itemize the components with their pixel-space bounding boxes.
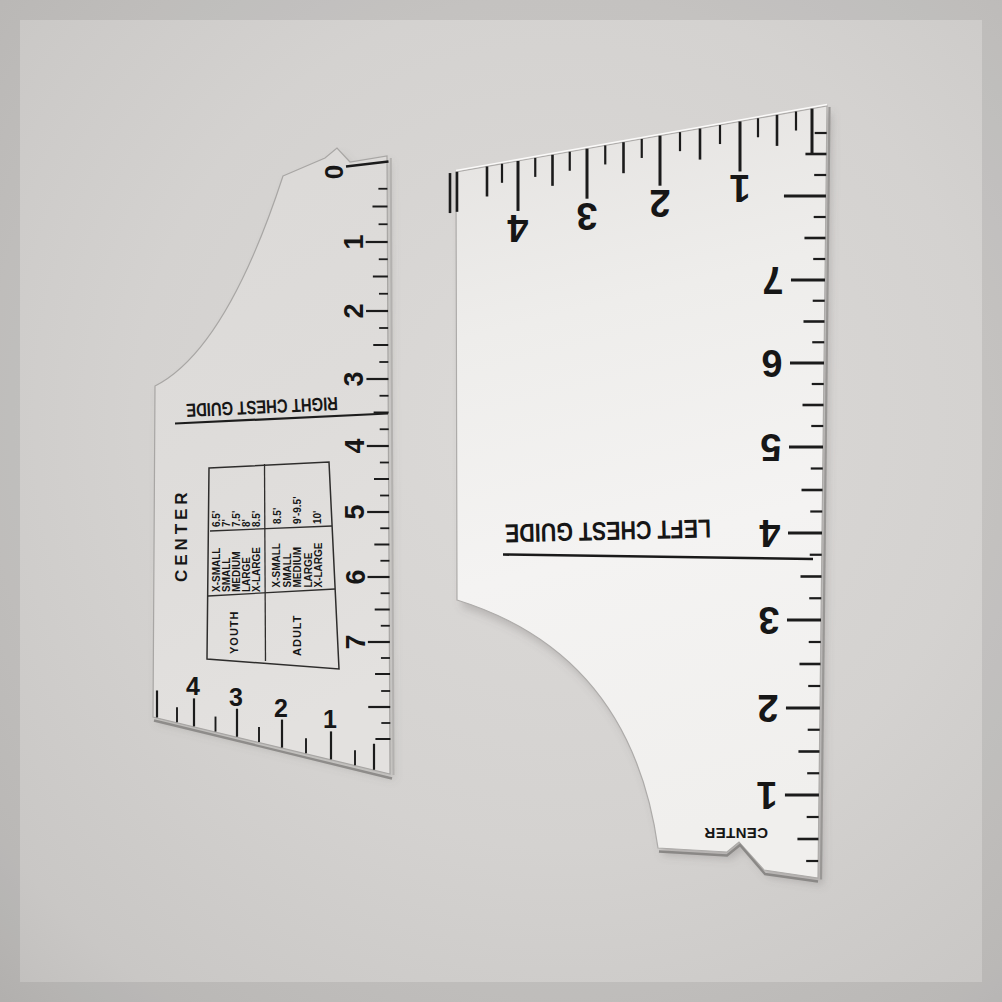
table-cell-text: YOUTH (228, 611, 240, 655)
scale-digit: 5 (340, 504, 370, 519)
scale-digit: 3 (229, 683, 243, 711)
table-cell-text: SMALL (282, 553, 293, 587)
table-cell-text: 9'-9.5' (292, 496, 303, 524)
scale-digit: 6 (341, 569, 371, 584)
table-cell-text: X-LARGE (251, 547, 262, 592)
table-cell-text: 8.5' (272, 508, 283, 524)
scale-digit: 3 (758, 599, 779, 641)
scale-digit: 2 (274, 694, 288, 722)
table-cell-text: 10' (312, 510, 323, 524)
table-cell-text: ADULT (291, 615, 303, 656)
table-cell-text: X-SMALL (271, 543, 282, 587)
center-label: CENTER (172, 488, 191, 582)
scale-digit: 0 (319, 165, 349, 179)
ruler-title: LEFT CHEST GUIDE (505, 513, 712, 548)
scale-digit: 7 (341, 634, 371, 649)
scale-digit: 3 (339, 371, 369, 386)
table-cell-text: X-LARGE (313, 542, 324, 587)
scale-digit: 4 (340, 438, 370, 453)
photo-canvas: 01234567 4321 RIGHT CHEST GUIDE CENTER 6… (0, 0, 1002, 1002)
product-photo: 01234567 4321 RIGHT CHEST GUIDE CENTER 6… (0, 0, 1002, 1002)
scale-digit: 1 (323, 705, 337, 733)
table-cell-text: MEDIUM (292, 547, 303, 588)
scale-digit: 7 (762, 259, 783, 301)
center-label: CENTER (704, 825, 768, 842)
scale-digit: 3 (576, 195, 597, 237)
scale-digit: 5 (760, 426, 781, 468)
scale-digit: 6 (761, 342, 782, 384)
table-cell-text: 8.5' (251, 511, 262, 527)
scale-digit: 1 (339, 234, 369, 249)
scale-digit: 2 (339, 303, 369, 318)
scale-digit: 4 (507, 207, 528, 249)
scale-digit: 4 (759, 512, 780, 554)
scale-digit: 1 (729, 167, 750, 209)
scale-digit: 4 (186, 672, 200, 700)
table-cell-text: LARGE (303, 552, 314, 587)
scale-digit: 2 (757, 687, 778, 729)
scale-digit: 1 (756, 774, 777, 816)
scale-digit: 2 (649, 182, 670, 224)
